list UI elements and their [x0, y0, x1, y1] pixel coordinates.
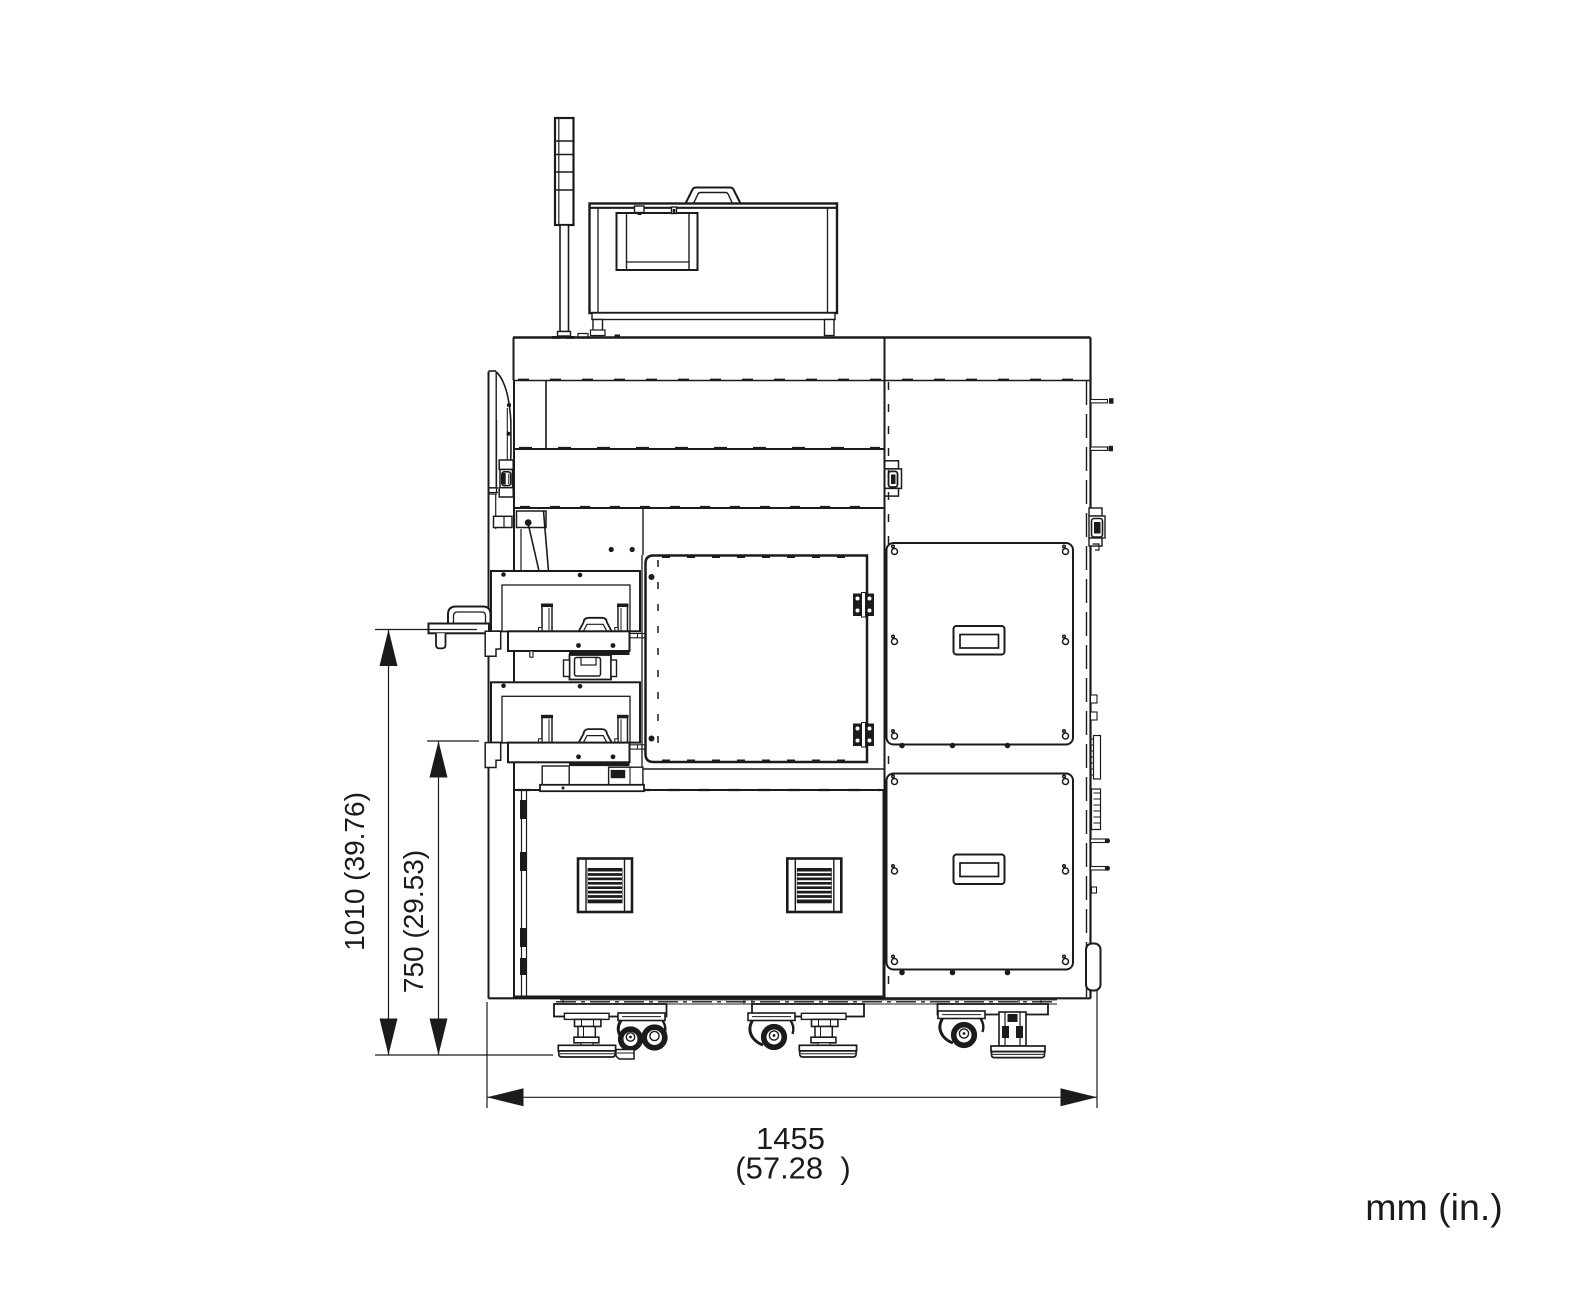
svg-text:1010 (39.76): 1010 (39.76)	[339, 792, 370, 951]
svg-text:mm (in.): mm (in.)	[1365, 1186, 1502, 1228]
svg-text:(57.28 ): (57.28 )	[735, 1151, 850, 1186]
svg-text:750 (29.53): 750 (29.53)	[398, 850, 429, 993]
